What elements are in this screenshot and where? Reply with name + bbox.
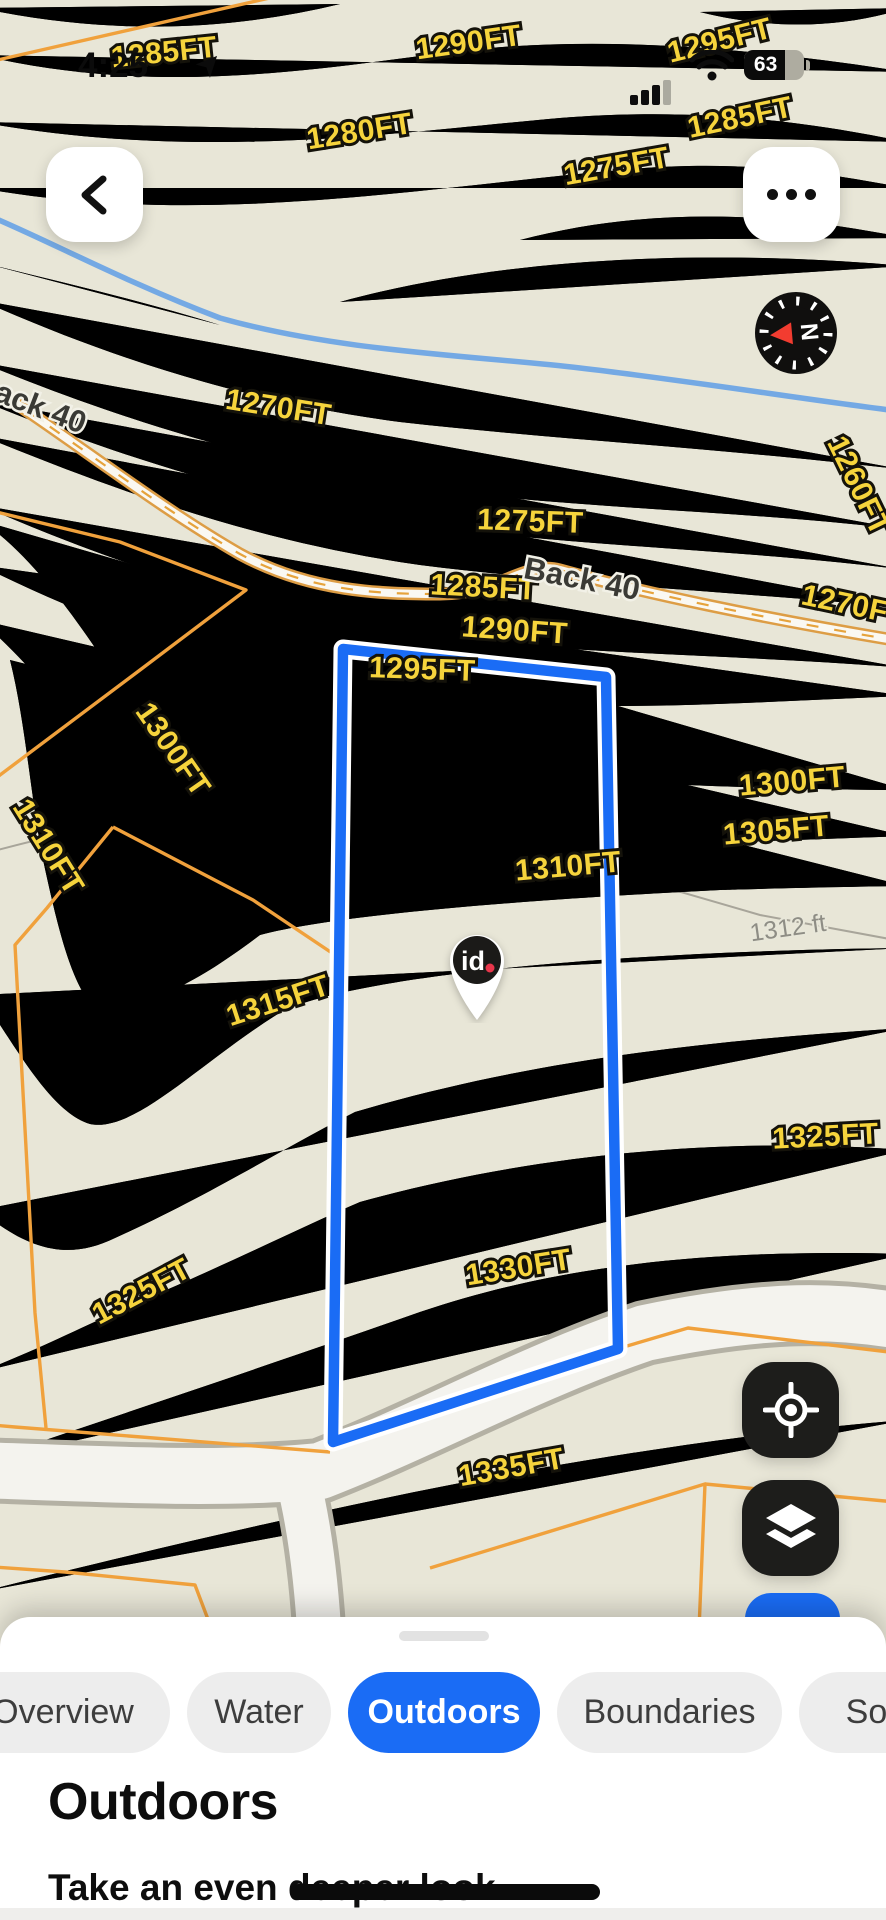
- wifi-icon: [690, 50, 734, 82]
- battery-nub: [806, 60, 810, 71]
- elevation-label: 1295FT: [369, 651, 476, 688]
- compass-button[interactable]: N: [754, 291, 838, 375]
- elevation-label: 1285FT: [430, 568, 538, 607]
- compass-north-label: N: [796, 322, 824, 342]
- tab-outdoors[interactable]: Outdoors: [348, 1672, 540, 1753]
- tab-soil[interactable]: Soil: [799, 1672, 886, 1753]
- map-layers-button[interactable]: [742, 1480, 839, 1576]
- more-options-button[interactable]: [743, 147, 840, 242]
- elevation-label: 1325FT: [772, 1117, 880, 1156]
- battery-percent: 63: [744, 50, 787, 80]
- section-heading: Outdoors: [48, 1772, 278, 1832]
- tab-water[interactable]: Water: [187, 1672, 331, 1753]
- cellular-signal-icon: [630, 80, 671, 105]
- app-screen: 1285FT 1290FT 1295FT 1280FT 1285FT 1275F…: [0, 0, 886, 1920]
- tab-overview[interactable]: Overview: [0, 1672, 170, 1753]
- pin-logo-text: id: [461, 946, 485, 976]
- chevron-left-icon: [75, 173, 115, 217]
- sheet-tabs: Overview Water Outdoors Boundaries Soil: [0, 1672, 886, 1753]
- back-button[interactable]: [46, 147, 143, 242]
- status-time: 4:25: [78, 46, 148, 86]
- sheet-drag-handle[interactable]: [399, 1631, 489, 1641]
- property-pin[interactable]: id: [442, 928, 512, 1023]
- crosshair-icon: [763, 1382, 819, 1438]
- ellipsis-icon: [767, 189, 816, 200]
- tab-boundaries[interactable]: Boundaries: [557, 1672, 782, 1753]
- elevation-label: 1275FT: [477, 503, 584, 540]
- locate-me-button[interactable]: [742, 1362, 839, 1458]
- next-section-edge: [0, 1908, 886, 1920]
- bottom-sheet: Overview Water Outdoors Boundaries Soil …: [0, 1617, 886, 1920]
- pin-logo-dot: [486, 964, 495, 973]
- battery-icon: 63: [744, 50, 804, 80]
- layers-icon: [762, 1502, 820, 1554]
- home-indicator[interactable]: [290, 1884, 600, 1900]
